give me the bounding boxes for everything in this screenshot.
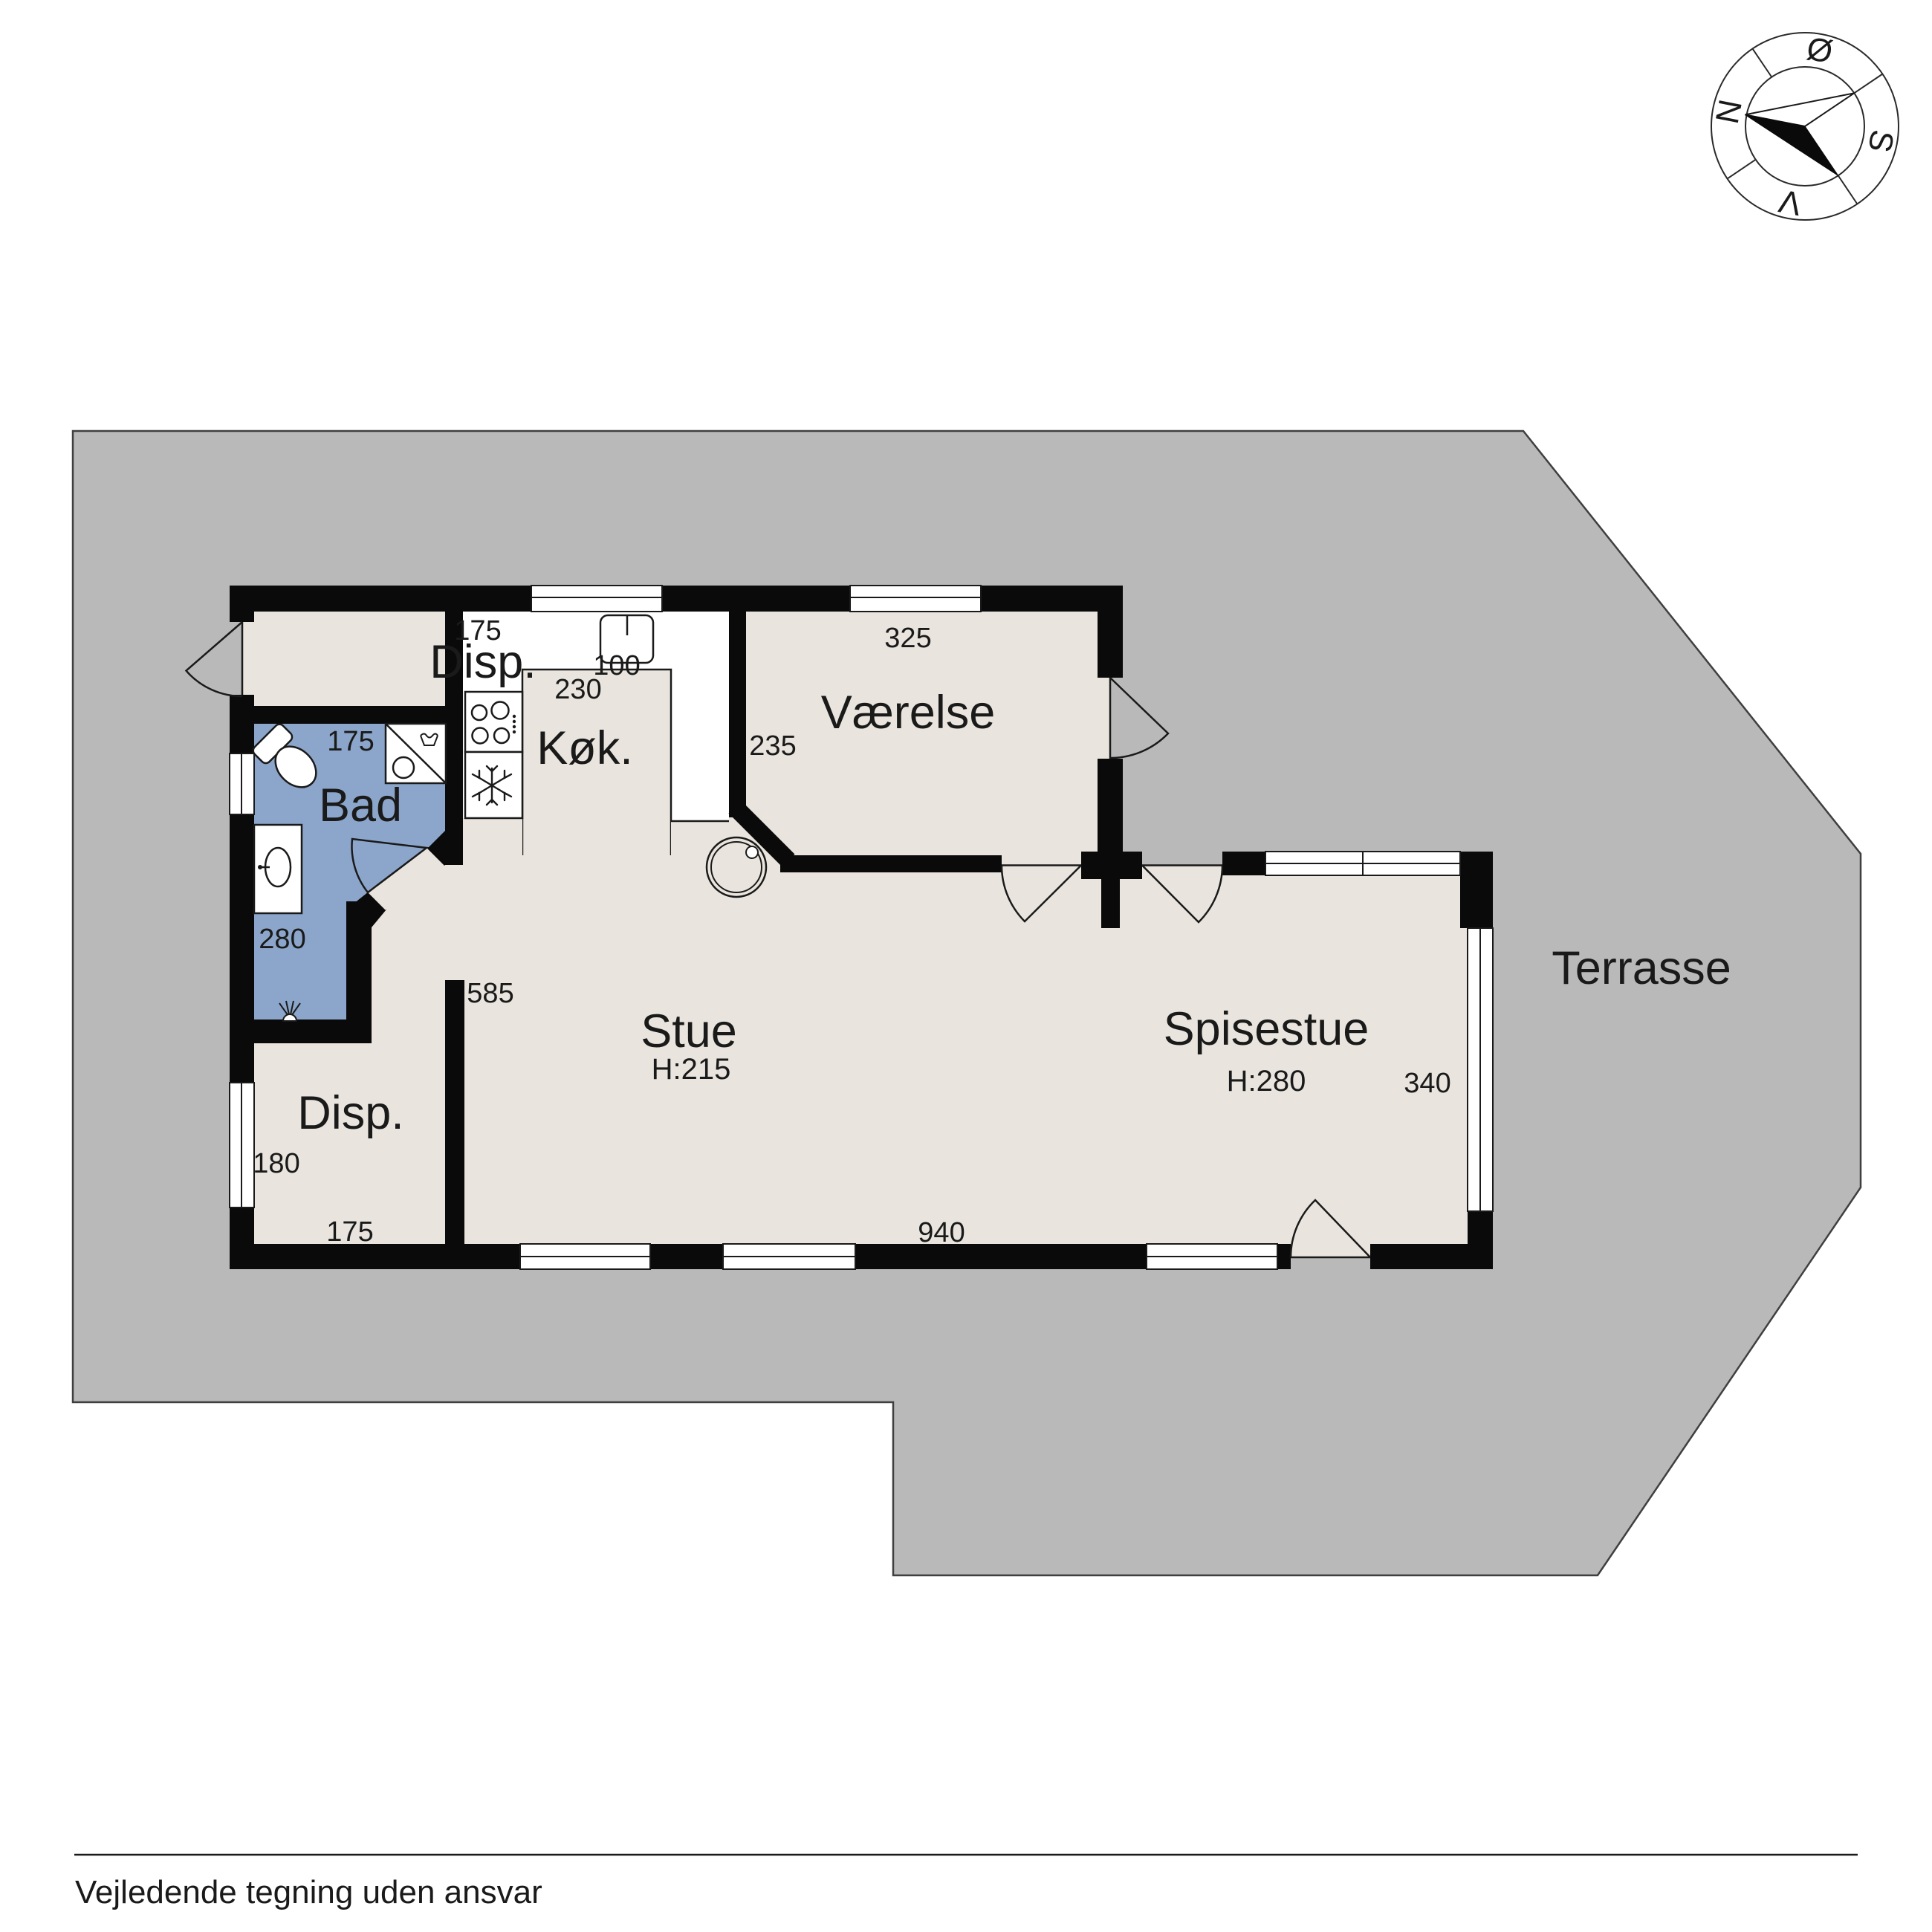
svg-text:H:215: H:215: [652, 1053, 731, 1086]
svg-text:175: 175: [327, 726, 374, 757]
svg-text:585: 585: [467, 978, 513, 1009]
svg-text:230: 230: [554, 674, 601, 705]
svg-text:Disp.: Disp.: [297, 1087, 404, 1139]
svg-text:Køk.: Køk.: [537, 722, 633, 774]
svg-text:Værelse: Værelse: [821, 687, 996, 739]
svg-text:940: 940: [918, 1217, 965, 1248]
svg-text:Vejledende tegning uden ansvar: Vejledende tegning uden ansvar: [75, 1874, 542, 1910]
svg-text:180: 180: [253, 1148, 299, 1179]
svg-text:235: 235: [749, 730, 796, 762]
svg-text:Spisestue: Spisestue: [1164, 1003, 1369, 1055]
svg-text:Bad: Bad: [319, 779, 402, 832]
svg-text:340: 340: [1404, 1068, 1450, 1099]
svg-text:Stue: Stue: [641, 1005, 737, 1057]
svg-text:280: 280: [259, 924, 305, 955]
svg-text:325: 325: [884, 623, 931, 654]
svg-text:175: 175: [454, 615, 501, 646]
svg-text:Terrasse: Terrasse: [1552, 942, 1731, 994]
svg-text:H:280: H:280: [1227, 1065, 1306, 1098]
svg-text:175: 175: [326, 1216, 373, 1248]
